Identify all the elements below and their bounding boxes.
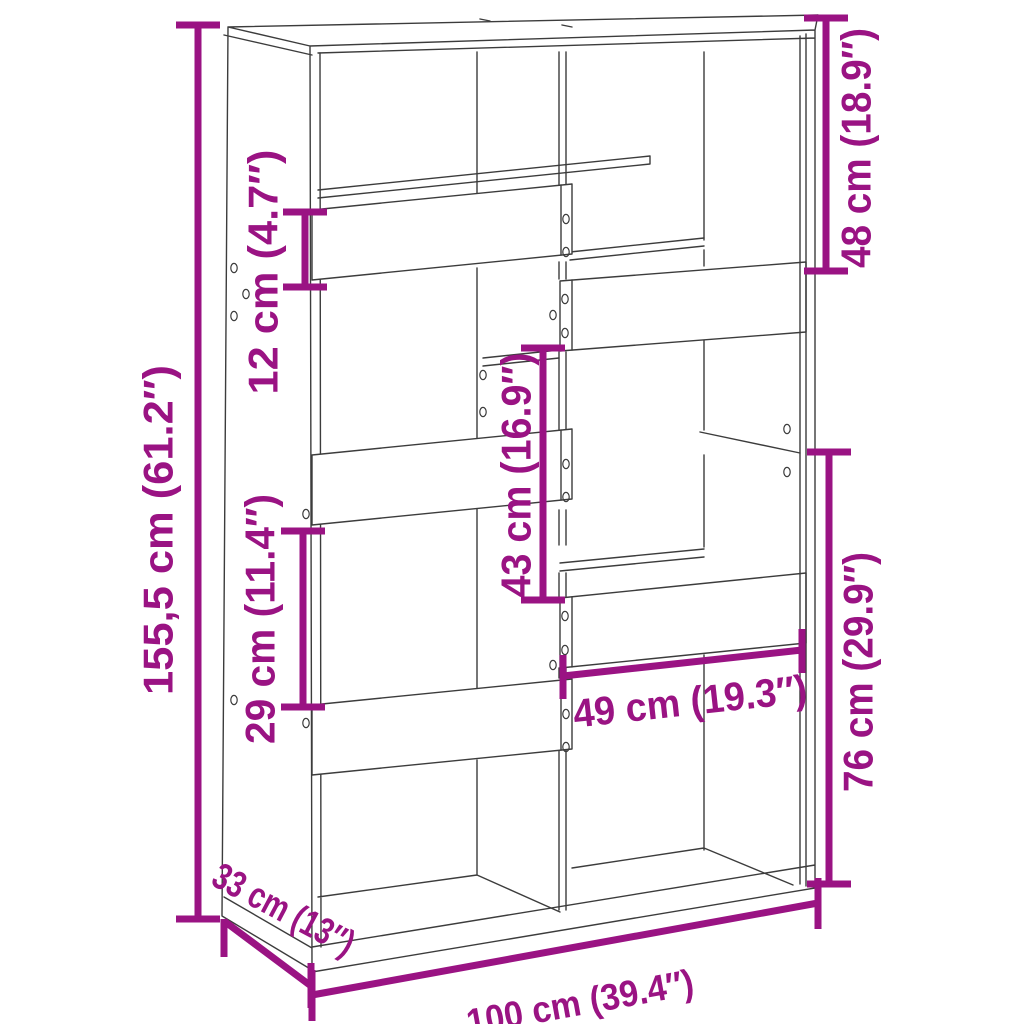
dimension-total-height: 155,5 cm (61.2″) bbox=[135, 25, 220, 919]
bookcase-board-e bbox=[312, 679, 572, 775]
dimension-lower-right-opening-label: 76 cm (29.9″) bbox=[835, 552, 882, 792]
bookcase-board-b bbox=[560, 262, 806, 351]
dimension-left-opening-line bbox=[281, 531, 325, 707]
dimension-total-height-line bbox=[176, 25, 220, 919]
dimension-total-depth: 33 cm (13″) bbox=[206, 855, 362, 1008]
bookcase-board-a bbox=[312, 184, 572, 280]
diagram-svg: 155,5 cm (61.2″) 12 cm (4.7″) 48 cm (18.… bbox=[0, 0, 1024, 1024]
dimension-top-right-opening-label: 48 cm (18.9″) bbox=[833, 28, 880, 268]
diagram-canvas: 155,5 cm (61.2″) 12 cm (4.7″) 48 cm (18.… bbox=[0, 0, 1024, 1024]
dimension-left-opening-label: 29 cm (11.4″) bbox=[237, 494, 284, 744]
dimension-opening-width-label: 49 cm (19.3″) bbox=[571, 667, 809, 736]
dimension-total-depth-label: 33 cm (13″) bbox=[206, 855, 362, 964]
dimension-lower-right-opening: 76 cm (29.9″) bbox=[807, 452, 882, 884]
dimension-board-height-label: 12 cm (4.7″) bbox=[240, 150, 287, 395]
dimension-total-width-label: 100 cm (39.4″) bbox=[463, 962, 697, 1024]
dimension-total-height-label: 155,5 cm (61.2″) bbox=[135, 365, 182, 695]
dimension-middle-opening-label: 43 cm (16.9″) bbox=[493, 353, 540, 598]
